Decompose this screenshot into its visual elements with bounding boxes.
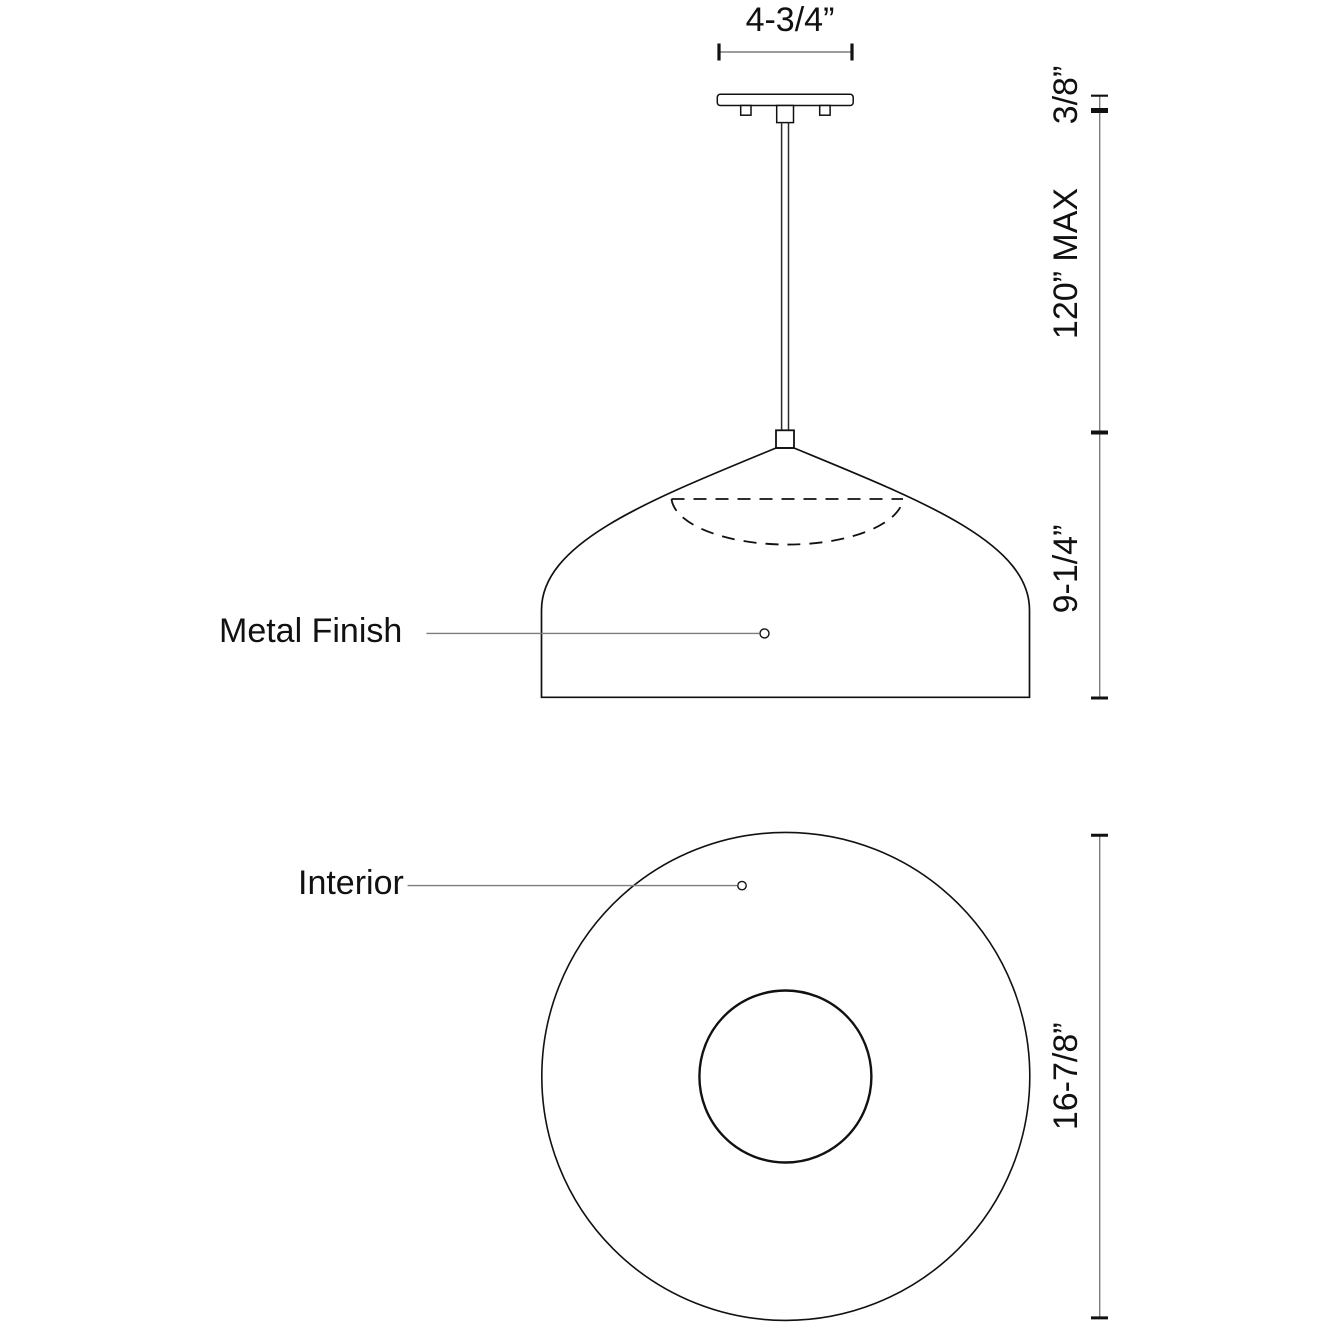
svg-text:3/8”: 3/8” (1047, 66, 1085, 125)
svg-text:120” MAX: 120” MAX (1047, 188, 1085, 339)
svg-text:Interior: Interior (298, 864, 404, 902)
svg-text:4-3/4”: 4-3/4” (746, 1, 835, 39)
svg-text:9-1/4”: 9-1/4” (1047, 525, 1085, 614)
svg-text:16-7/8”: 16-7/8” (1047, 1022, 1085, 1130)
svg-text:Metal Finish: Metal Finish (219, 612, 402, 650)
